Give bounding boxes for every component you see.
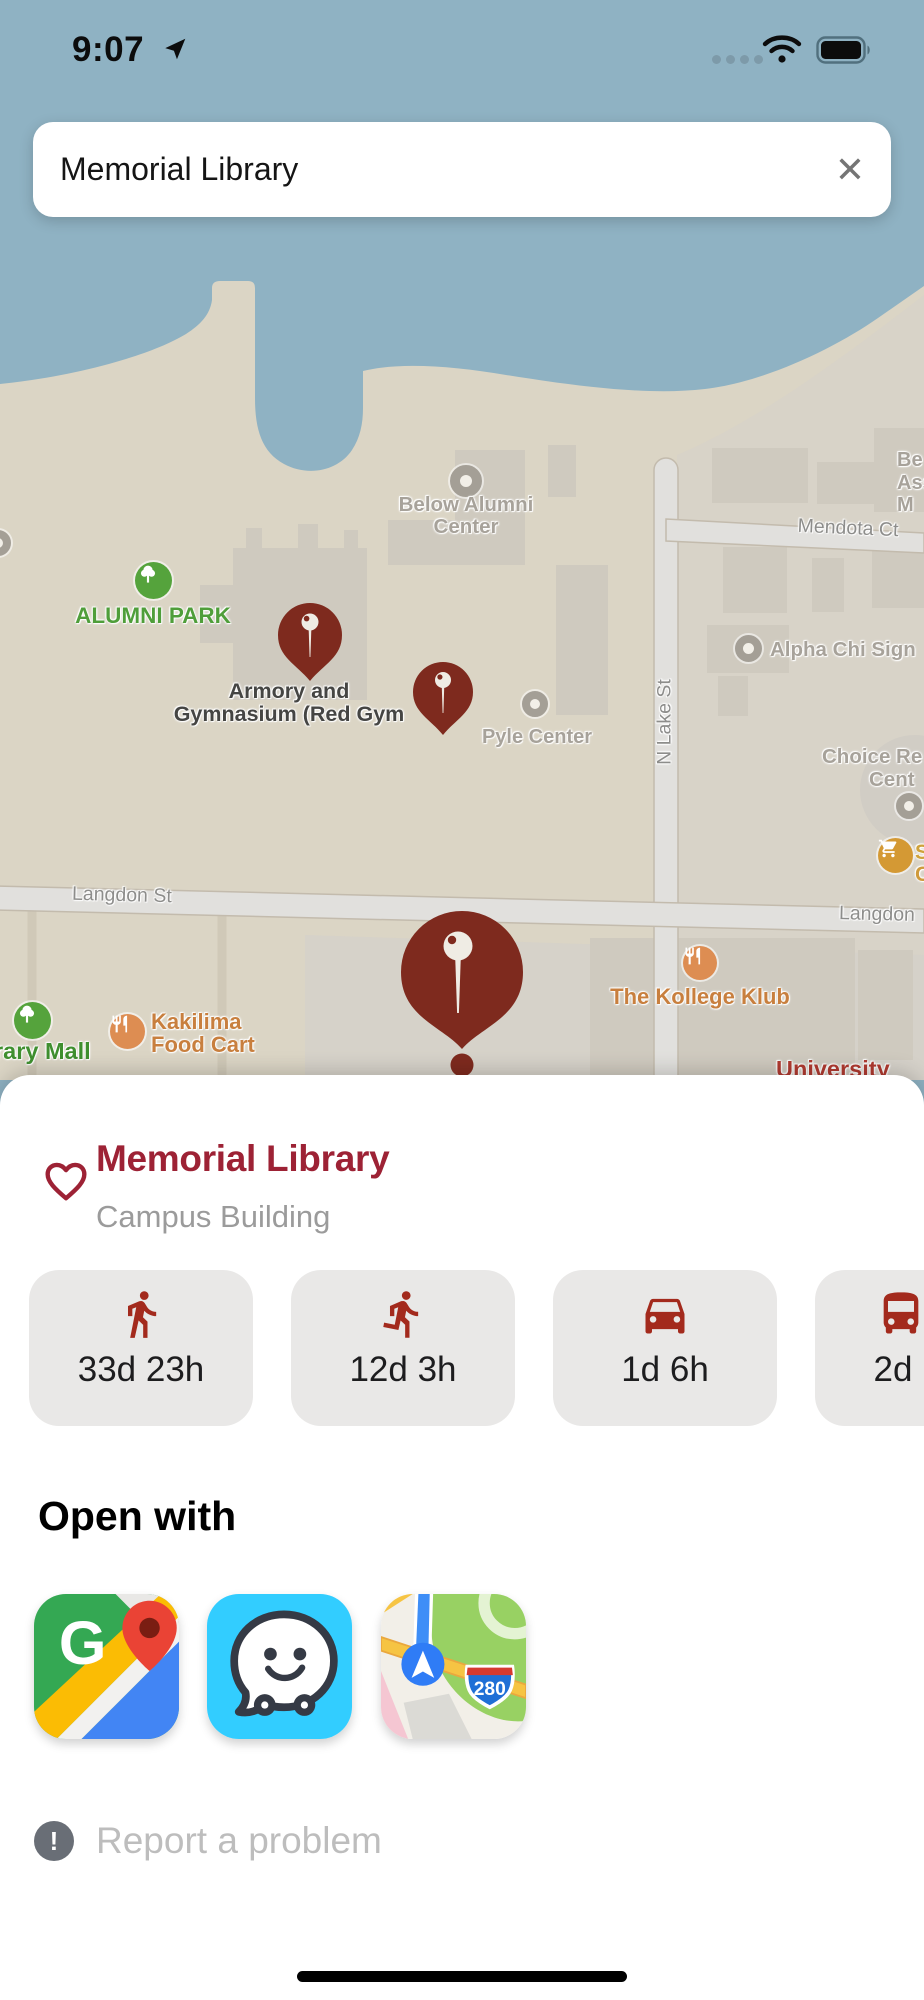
svg-text:G: G [59, 1609, 107, 1677]
walk-icon [115, 1288, 167, 1340]
bus-icon [875, 1288, 924, 1340]
open-with-heading: Open with [38, 1493, 236, 1540]
travel-time-walk: 33d 23h [78, 1350, 205, 1390]
label-n-lake-st: N Lake St [654, 679, 677, 765]
travel-time-chips: 33d 23h 12d 3h 1d 6h 2d [0, 1270, 924, 1426]
apple-maps-icon[interactable]: 280 [381, 1594, 526, 1739]
label-cart-trunc-2: C [915, 863, 924, 887]
svg-text:280: 280 [474, 1679, 506, 1700]
place-subtitle: Campus Building [96, 1199, 330, 1235]
favorite-heart-icon[interactable] [40, 1157, 92, 1207]
travel-chip-run[interactable]: 12d 3h [291, 1270, 515, 1426]
poi-dot-pyle [522, 691, 548, 717]
shopping-cart-icon [878, 838, 913, 873]
label-alumni-park: ALUMNI PARK [75, 603, 231, 629]
poi-dot-choice [896, 793, 922, 819]
restaurant-icon-kollege [683, 946, 717, 980]
label-armory: Armory and Gymnasium (Red Gym [174, 680, 405, 726]
label-langdon-st-left: Langdon St [72, 883, 172, 908]
run-icon [377, 1288, 429, 1340]
poi-dot-alpha-chi [735, 635, 762, 662]
clear-search-icon[interactable]: ✕ [835, 152, 865, 188]
place-title: Memorial Library [96, 1138, 389, 1180]
waze-icon[interactable] [207, 1594, 352, 1739]
label-kakilima: Kakilima Food Cart [151, 1010, 281, 1056]
travel-time-bus: 2d [874, 1350, 913, 1390]
label-langdon-st-right: Langdon [839, 902, 915, 927]
travel-time-car: 1d 6h [621, 1350, 709, 1390]
status-time: 9:07 [72, 30, 144, 70]
label-cart-trunc-1: S [915, 841, 924, 865]
report-problem-label: Report a problem [96, 1820, 382, 1862]
wifi-icon [762, 33, 802, 65]
travel-time-run: 12d 3h [349, 1350, 456, 1390]
report-problem-row[interactable]: ! Report a problem [0, 1811, 924, 1871]
google-maps-icon[interactable]: G [34, 1594, 179, 1739]
label-kollege-klub: The Kollege Klub [610, 984, 790, 1010]
travel-chip-bus[interactable]: 2d [815, 1270, 924, 1426]
cellular-dots-icon [712, 55, 763, 64]
search-input[interactable] [58, 150, 835, 189]
label-alpha-chi: Alpha Chi Sign [770, 638, 916, 662]
phone-screen: Below Alumni Center ALUMNI PARK Armory a… [0, 0, 924, 2000]
label-choice-line1: Choice Re [822, 745, 922, 769]
label-ne-truncated: Be Ass M [897, 449, 924, 517]
tree-icon [135, 562, 172, 599]
location-arrow-icon [162, 36, 188, 62]
travel-chip-car[interactable]: 1d 6h [553, 1270, 777, 1426]
label-below-alumni-center: Below Alumni Center [386, 494, 546, 537]
status-bar: 9:07 [0, 0, 924, 90]
label-library-mall: rary Mall [0, 1038, 91, 1065]
alert-icon: ! [34, 1821, 74, 1861]
label-choice-line2: Cent [869, 768, 915, 792]
open-with-apps: G [0, 1594, 924, 1740]
battery-icon [816, 36, 874, 64]
poi-dot-left-edge [0, 530, 11, 556]
search-bar: ✕ [33, 122, 891, 217]
label-pyle-center: Pyle Center [482, 726, 592, 749]
travel-chip-walk[interactable]: 33d 23h [29, 1270, 253, 1426]
tree-icon-library-mall [14, 1002, 51, 1039]
car-icon [639, 1288, 691, 1340]
label-mendota-ct: Mendota Ct [797, 515, 899, 542]
restaurant-icon-kakilima [110, 1014, 145, 1049]
bottom-sheet: Memorial Library Campus Building 33d 23h… [0, 1075, 924, 2000]
home-indicator[interactable] [297, 1971, 627, 1982]
